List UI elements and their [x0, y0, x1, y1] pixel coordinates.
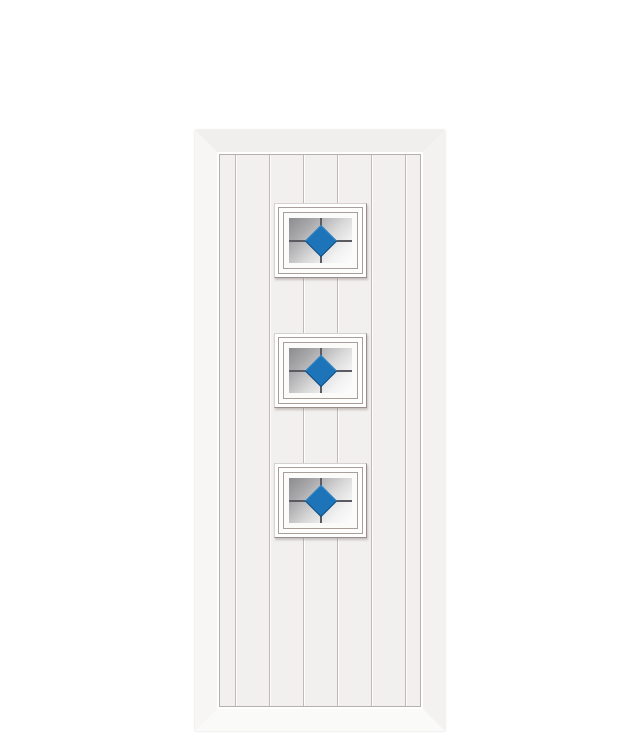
glazed-panel [274, 333, 367, 408]
plank-groove [235, 155, 237, 706]
obscure-glass [289, 218, 352, 263]
plank-groove [405, 155, 407, 706]
glazed-panel [274, 463, 367, 538]
glazed-panel [274, 203, 367, 278]
plank-groove [269, 155, 271, 706]
door-frame-highlight [217, 152, 423, 709]
obscure-glass [289, 348, 352, 393]
product-image-canvas [0, 0, 640, 754]
glazing-moulding-outer [278, 467, 363, 534]
blue-diamond-glass [304, 354, 337, 387]
door-plank-panel [219, 154, 421, 707]
blue-diamond-glass [304, 224, 337, 257]
glazing-moulding-inner [283, 342, 358, 399]
glazing-moulding-outer [278, 207, 363, 274]
obscure-glass [289, 478, 352, 523]
glazing-moulding-inner [283, 472, 358, 529]
glazing-moulding-inner [283, 212, 358, 269]
plank-groove [371, 155, 373, 706]
glazing-moulding-outer [278, 337, 363, 404]
door-slab [195, 130, 445, 731]
blue-diamond-glass [304, 484, 337, 517]
